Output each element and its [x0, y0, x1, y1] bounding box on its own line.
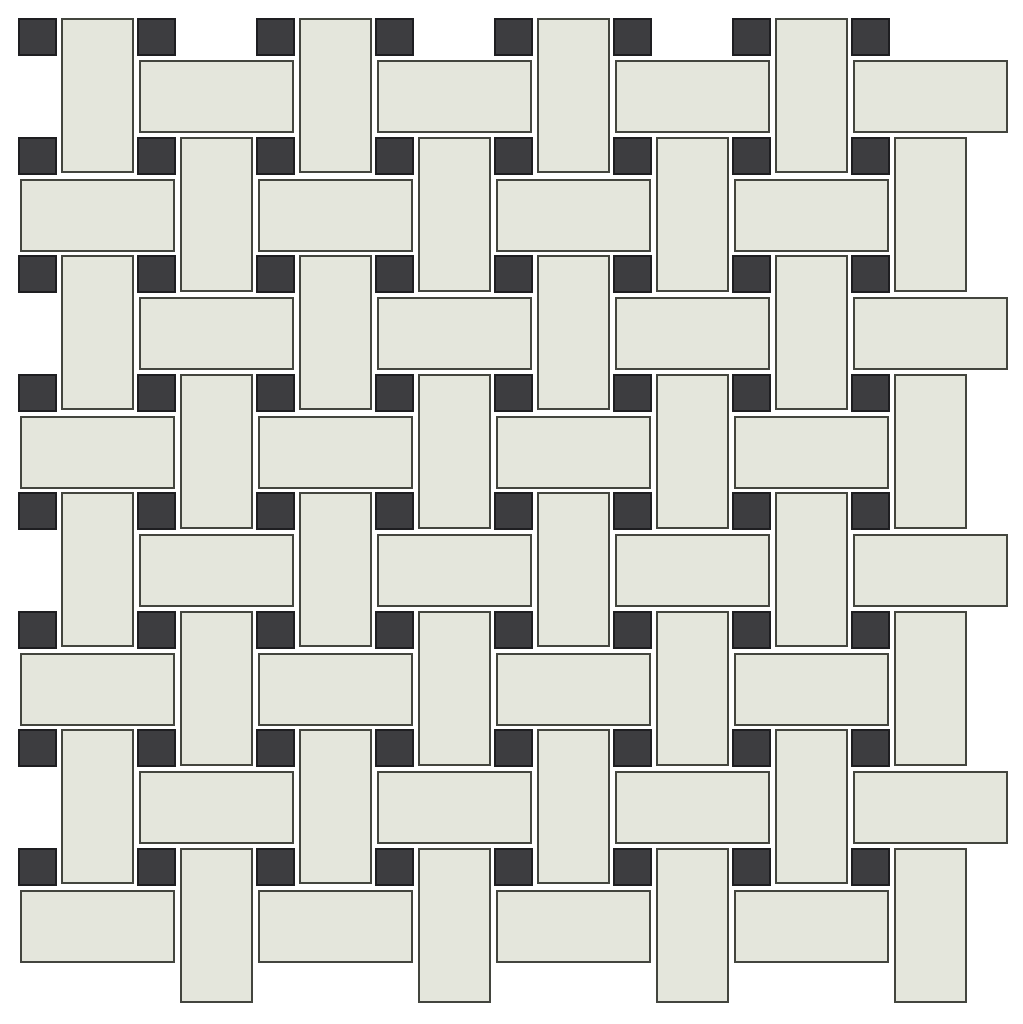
mosaic-tile-horizontal: [20, 416, 175, 489]
mosaic-dot-tile: [137, 255, 176, 293]
mosaic-dot-tile: [613, 374, 652, 412]
mosaic-tile-horizontal: [734, 416, 889, 489]
mosaic-dot-tile: [613, 848, 652, 886]
mosaic-dot-tile: [494, 848, 533, 886]
mosaic-dot-tile: [732, 848, 771, 886]
mosaic-tile-vertical: [180, 848, 253, 1003]
mosaic-tile-horizontal: [20, 890, 175, 963]
mosaic-tile-vertical: [418, 374, 491, 529]
mosaic-tile-horizontal: [496, 179, 651, 252]
mosaic-tile-horizontal: [139, 297, 294, 370]
mosaic-tile-vertical: [537, 492, 610, 647]
mosaic-tile-horizontal: [377, 771, 532, 844]
mosaic-dot-tile: [18, 137, 57, 175]
mosaic-tile-vertical: [180, 374, 253, 529]
mosaic-dot-tile: [137, 611, 176, 649]
mosaic-tile-vertical: [418, 137, 491, 292]
mosaic-tile-horizontal: [734, 179, 889, 252]
mosaic-sheet: [0, 0, 1023, 1024]
mosaic-dot-tile: [18, 611, 57, 649]
mosaic-tile-vertical: [61, 18, 134, 173]
mosaic-dot-tile: [18, 848, 57, 886]
mosaic-dot-tile: [494, 18, 533, 56]
mosaic-tile-horizontal: [853, 534, 1008, 607]
mosaic-dot-tile: [851, 374, 890, 412]
mosaic-dot-tile: [851, 18, 890, 56]
mosaic-tile-vertical: [418, 848, 491, 1003]
mosaic-tile-horizontal: [853, 60, 1008, 133]
mosaic-dot-tile: [851, 137, 890, 175]
mosaic-dot-tile: [732, 18, 771, 56]
mosaic-tile-vertical: [775, 255, 848, 410]
mosaic-dot-tile: [137, 848, 176, 886]
mosaic-tile-horizontal: [496, 416, 651, 489]
mosaic-dot-tile: [613, 137, 652, 175]
mosaic-dot-tile: [613, 492, 652, 530]
mosaic-dot-tile: [18, 729, 57, 767]
mosaic-tile-vertical: [894, 848, 967, 1003]
mosaic-tile-vertical: [299, 729, 372, 884]
mosaic-tile-horizontal: [377, 534, 532, 607]
mosaic-tile-vertical: [894, 137, 967, 292]
mosaic-tile-vertical: [656, 848, 729, 1003]
mosaic-dot-tile: [494, 137, 533, 175]
mosaic-dot-tile: [256, 18, 295, 56]
mosaic-dot-tile: [851, 611, 890, 649]
mosaic-tile-vertical: [299, 18, 372, 173]
mosaic-tile-horizontal: [615, 297, 770, 370]
mosaic-dot-tile: [256, 611, 295, 649]
mosaic-tile-vertical: [61, 255, 134, 410]
mosaic-dot-tile: [137, 137, 176, 175]
mosaic-dot-tile: [732, 611, 771, 649]
mosaic-dot-tile: [137, 18, 176, 56]
mosaic-dot-tile: [613, 729, 652, 767]
mosaic-tile-horizontal: [258, 890, 413, 963]
mosaic-dot-tile: [851, 255, 890, 293]
mosaic-tile-vertical: [894, 611, 967, 766]
mosaic-tile-horizontal: [496, 653, 651, 726]
mosaic-dot-tile: [137, 492, 176, 530]
mosaic-tile-horizontal: [377, 60, 532, 133]
mosaic-dot-tile: [256, 374, 295, 412]
mosaic-tile-vertical: [894, 374, 967, 529]
mosaic-dot-tile: [18, 18, 57, 56]
mosaic-dot-tile: [256, 137, 295, 175]
mosaic-dot-tile: [375, 492, 414, 530]
mosaic-dot-tile: [494, 255, 533, 293]
mosaic-dot-tile: [851, 729, 890, 767]
mosaic-dot-tile: [256, 492, 295, 530]
mosaic-tile-vertical: [775, 18, 848, 173]
mosaic-dot-tile: [18, 374, 57, 412]
mosaic-dot-tile: [851, 848, 890, 886]
mosaic-dot-tile: [732, 729, 771, 767]
mosaic-dot-tile: [732, 492, 771, 530]
mosaic-tile-vertical: [61, 729, 134, 884]
mosaic-tile-horizontal: [139, 534, 294, 607]
mosaic-tile-horizontal: [258, 653, 413, 726]
mosaic-dot-tile: [256, 255, 295, 293]
mosaic-tile-horizontal: [615, 771, 770, 844]
mosaic-dot-tile: [256, 729, 295, 767]
mosaic-dot-tile: [732, 374, 771, 412]
mosaic-tile-horizontal: [139, 60, 294, 133]
mosaic-tile-vertical: [537, 255, 610, 410]
mosaic-tile-vertical: [775, 729, 848, 884]
mosaic-tile-vertical: [180, 137, 253, 292]
mosaic-tile-vertical: [775, 492, 848, 647]
mosaic-dot-tile: [137, 729, 176, 767]
mosaic-tile-vertical: [418, 611, 491, 766]
mosaic-dot-tile: [137, 374, 176, 412]
mosaic-dot-tile: [494, 492, 533, 530]
mosaic-dot-tile: [256, 848, 295, 886]
mosaic-tile-vertical: [537, 18, 610, 173]
mosaic-tile-vertical: [656, 374, 729, 529]
mosaic-tile-horizontal: [377, 297, 532, 370]
mosaic-tile-vertical: [61, 492, 134, 647]
mosaic-dot-tile: [494, 374, 533, 412]
mosaic-tile-horizontal: [496, 890, 651, 963]
mosaic-tile-horizontal: [853, 771, 1008, 844]
mosaic-tile-vertical: [299, 255, 372, 410]
mosaic-dot-tile: [375, 137, 414, 175]
mosaic-dot-tile: [613, 611, 652, 649]
mosaic-tile-horizontal: [258, 179, 413, 252]
mosaic-dot-tile: [613, 18, 652, 56]
mosaic-dot-tile: [613, 255, 652, 293]
mosaic-tile-vertical: [299, 492, 372, 647]
mosaic-tile-horizontal: [615, 60, 770, 133]
mosaic-dot-tile: [375, 18, 414, 56]
mosaic-tile-horizontal: [20, 179, 175, 252]
mosaic-dot-tile: [375, 255, 414, 293]
mosaic-dot-tile: [732, 137, 771, 175]
mosaic-tile-horizontal: [734, 890, 889, 963]
mosaic-dot-tile: [375, 374, 414, 412]
mosaic-dot-tile: [732, 255, 771, 293]
mosaic-tile-horizontal: [139, 771, 294, 844]
mosaic-tile-horizontal: [258, 416, 413, 489]
mosaic-tile-horizontal: [734, 653, 889, 726]
mosaic-tile-vertical: [656, 137, 729, 292]
mosaic-tile-vertical: [656, 611, 729, 766]
mosaic-dot-tile: [375, 611, 414, 649]
mosaic-dot-tile: [18, 492, 57, 530]
mosaic-tile-vertical: [180, 611, 253, 766]
mosaic-tile-horizontal: [20, 653, 175, 726]
mosaic-dot-tile: [851, 492, 890, 530]
mosaic-tile-horizontal: [853, 297, 1008, 370]
mosaic-dot-tile: [494, 729, 533, 767]
mosaic-dot-tile: [18, 255, 57, 293]
mosaic-dot-tile: [375, 729, 414, 767]
mosaic-dot-tile: [375, 848, 414, 886]
mosaic-tile-horizontal: [615, 534, 770, 607]
mosaic-dot-tile: [494, 611, 533, 649]
mosaic-tile-vertical: [537, 729, 610, 884]
